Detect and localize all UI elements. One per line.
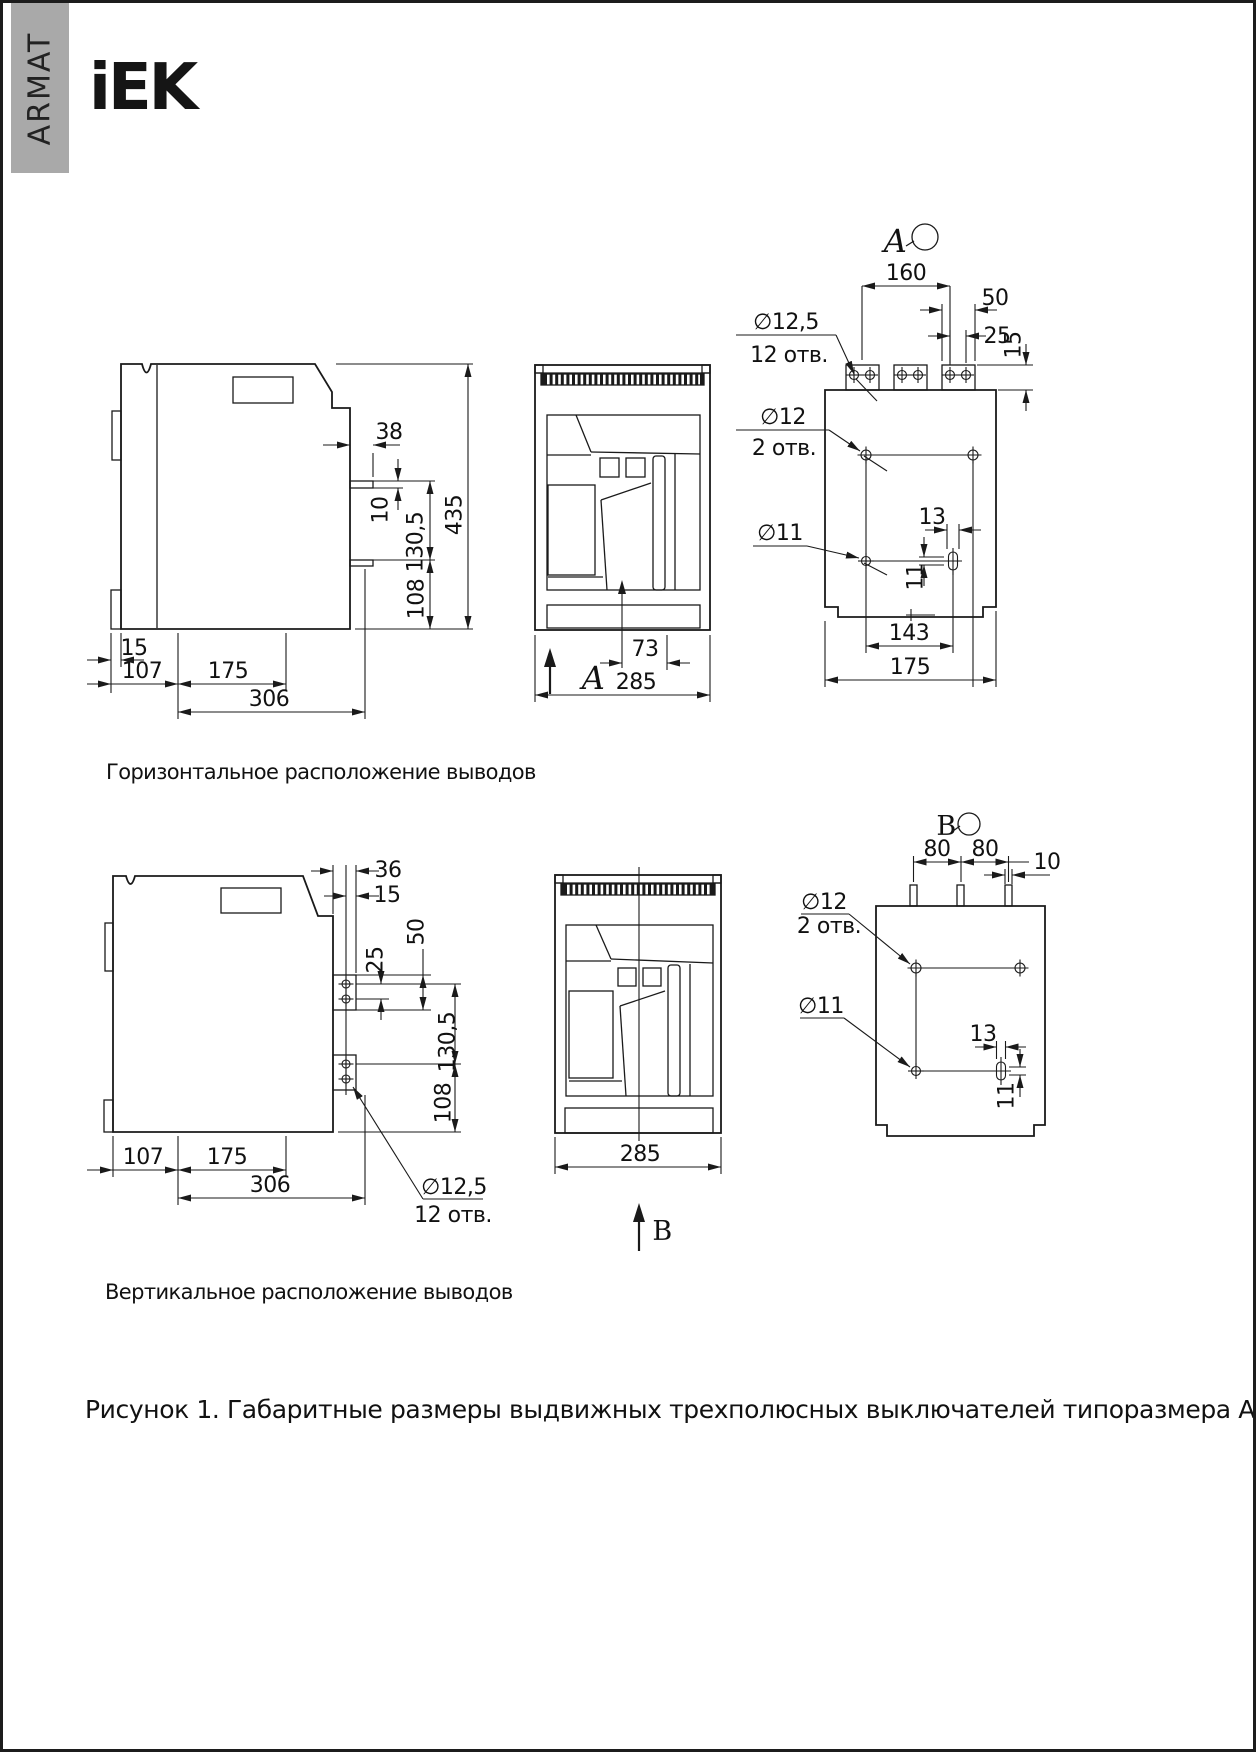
dim-15: 15 xyxy=(1002,332,1027,359)
dim-13: 13 xyxy=(919,505,946,530)
dim-160: 160 xyxy=(886,261,927,286)
dim-73: 73 xyxy=(632,637,659,662)
hole-note-12-5-count: 12 отв. xyxy=(750,343,828,368)
view-a-drill-plan: A 160 xyxy=(736,222,1033,687)
dim-108: 108 xyxy=(405,579,430,620)
dim-130-5: 130,5 xyxy=(404,512,429,572)
dim-80-right: 80 xyxy=(972,837,999,862)
dim-285: 285 xyxy=(616,670,657,695)
hole-note-12: ∅12 xyxy=(760,405,806,430)
hole-note-12-5: ∅12,5 xyxy=(421,1175,487,1200)
hole-note-11: ∅11 xyxy=(757,521,803,546)
dim-306: 306 xyxy=(250,1173,291,1198)
dim-175: 175 xyxy=(207,1145,248,1170)
hole-note-12-5-count: 12 отв. xyxy=(414,1203,492,1228)
dim-50: 50 xyxy=(405,919,430,946)
hole-note-12-count: 2 отв. xyxy=(797,914,861,939)
dim-25: 25 xyxy=(364,947,389,974)
dim-13: 13 xyxy=(970,1022,997,1047)
side-view-vertical: 36 15 25 50 130,5 108 xyxy=(87,858,492,1228)
hole-note-11: ∅11 xyxy=(798,994,844,1019)
drawing-sheet: ARMAT iEK Горизонтальное расположение вы… xyxy=(0,0,1256,1752)
dim-11: 11 xyxy=(904,564,929,591)
dim-107: 107 xyxy=(122,659,163,684)
side-view-horizontal: 38 10 130,5 108 435 xyxy=(87,364,473,719)
dim-10: 10 xyxy=(369,497,394,524)
dim-10: 10 xyxy=(1034,850,1061,875)
dim-107: 107 xyxy=(123,1145,164,1170)
front-view-horizontal: 73 285 A xyxy=(535,365,710,702)
dim-306: 306 xyxy=(249,687,290,712)
dim-108: 108 xyxy=(432,1083,457,1124)
dim-38: 38 xyxy=(376,420,403,445)
dim-15: 15 xyxy=(121,636,148,661)
dim-36: 36 xyxy=(375,858,402,883)
dim-175: 175 xyxy=(208,659,249,684)
dim-285: 285 xyxy=(620,1142,661,1167)
dim-130-5: 130,5 xyxy=(436,1012,461,1072)
hole-note-12: ∅12 xyxy=(801,890,847,915)
view-direction-label-a: A xyxy=(579,659,605,697)
dim-80-left: 80 xyxy=(924,837,951,862)
front-view-vertical: 285 B xyxy=(555,867,721,1251)
technical-drawing-canvas: 38 10 130,5 108 435 xyxy=(3,3,1256,1752)
view-direction-label-b: B xyxy=(652,1216,671,1247)
hole-note-12-5: ∅12,5 xyxy=(753,310,819,335)
view-b-drill-plan: B 80 80 10 xyxy=(797,811,1061,1136)
dim-175: 175 xyxy=(890,655,931,680)
dim-435: 435 xyxy=(443,495,468,536)
hole-note-12-count: 2 отв. xyxy=(752,436,816,461)
dim-15: 15 xyxy=(374,883,401,908)
dim-50: 50 xyxy=(982,286,1009,311)
dim-143: 143 xyxy=(889,621,930,646)
dim-11: 11 xyxy=(995,1083,1020,1110)
view-a-label: A xyxy=(881,222,907,260)
